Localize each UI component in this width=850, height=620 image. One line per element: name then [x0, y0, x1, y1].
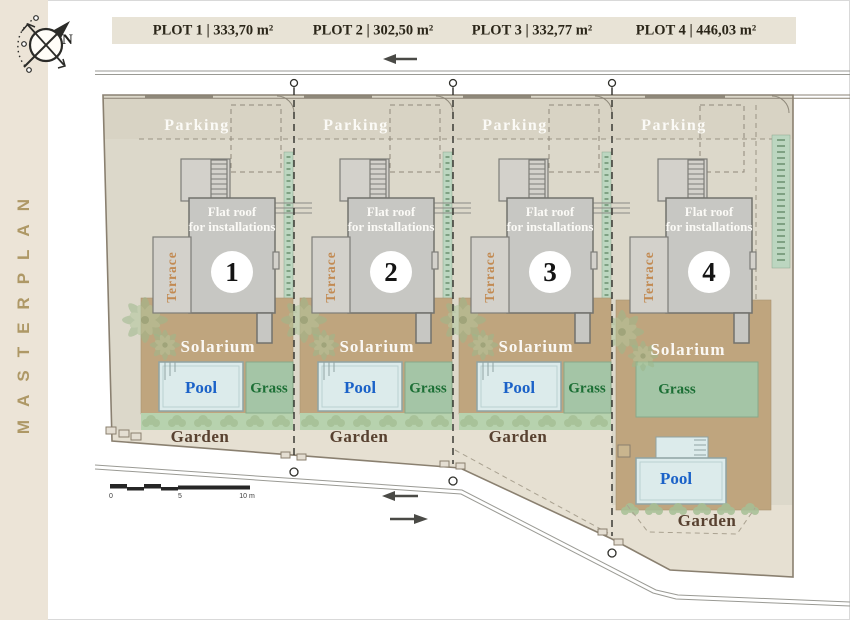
scale-zero-label: 0	[109, 493, 113, 500]
site-ground	[95, 90, 800, 585]
plot-1-area-label: PLOT 1 | 333,70 m²	[153, 22, 273, 39]
scale-ten-label: 10 m	[239, 493, 255, 500]
scale-five-label: 5	[178, 493, 182, 500]
siteplan-drawing	[0, 0, 850, 620]
road-arrow-right-bottom	[390, 514, 428, 524]
compass-north-label: N	[62, 32, 73, 49]
road-arrow-left-bottom	[382, 491, 418, 501]
road-arrow-left-top	[383, 54, 417, 64]
plot-2-area-label: PLOT 2 | 302,50 m²	[313, 22, 433, 39]
masterplan-page: MASTERPLAN	[0, 0, 850, 620]
plot-4-area-label: PLOT 4 | 446,03 m²	[636, 22, 756, 39]
plot-3-area-label: PLOT 3 | 332,77 m²	[472, 22, 592, 39]
scale-bar	[110, 484, 250, 491]
plot-legend-bar: PLOT 1 | 333,70 m² PLOT 2 | 302,50 m² PL…	[112, 17, 796, 44]
